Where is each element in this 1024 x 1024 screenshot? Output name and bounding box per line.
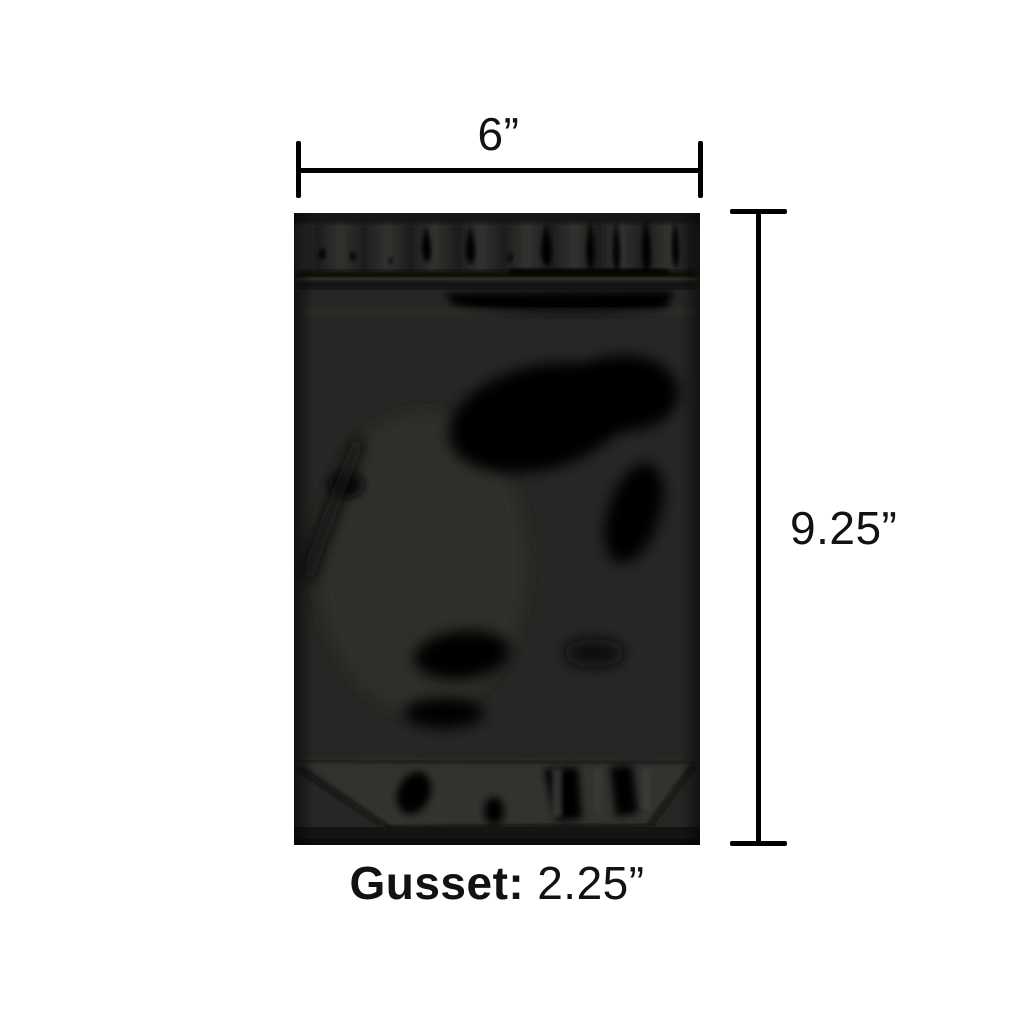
height-dimension-cap-bottom <box>730 841 787 846</box>
gusset-title: Gusset: <box>349 857 524 909</box>
gusset-value: 2.25” <box>537 857 644 909</box>
width-dimension-bar <box>296 168 703 173</box>
width-label: 6” <box>297 111 700 157</box>
bag-artwork <box>294 213 700 845</box>
height-dimension-bar <box>756 211 761 845</box>
width-dimension-tick-left <box>296 141 301 198</box>
height-dimension-cap-top <box>730 209 787 214</box>
bag-edge-shading <box>294 213 700 845</box>
width-dimension-tick-right <box>698 141 703 198</box>
bag-image <box>294 213 700 845</box>
gusset-label: Gusset:2.25” <box>294 860 700 906</box>
diagram-canvas: 6” 9.25” Gusset:2.25” <box>0 0 1024 1024</box>
height-label: 9.25” <box>790 505 897 551</box>
